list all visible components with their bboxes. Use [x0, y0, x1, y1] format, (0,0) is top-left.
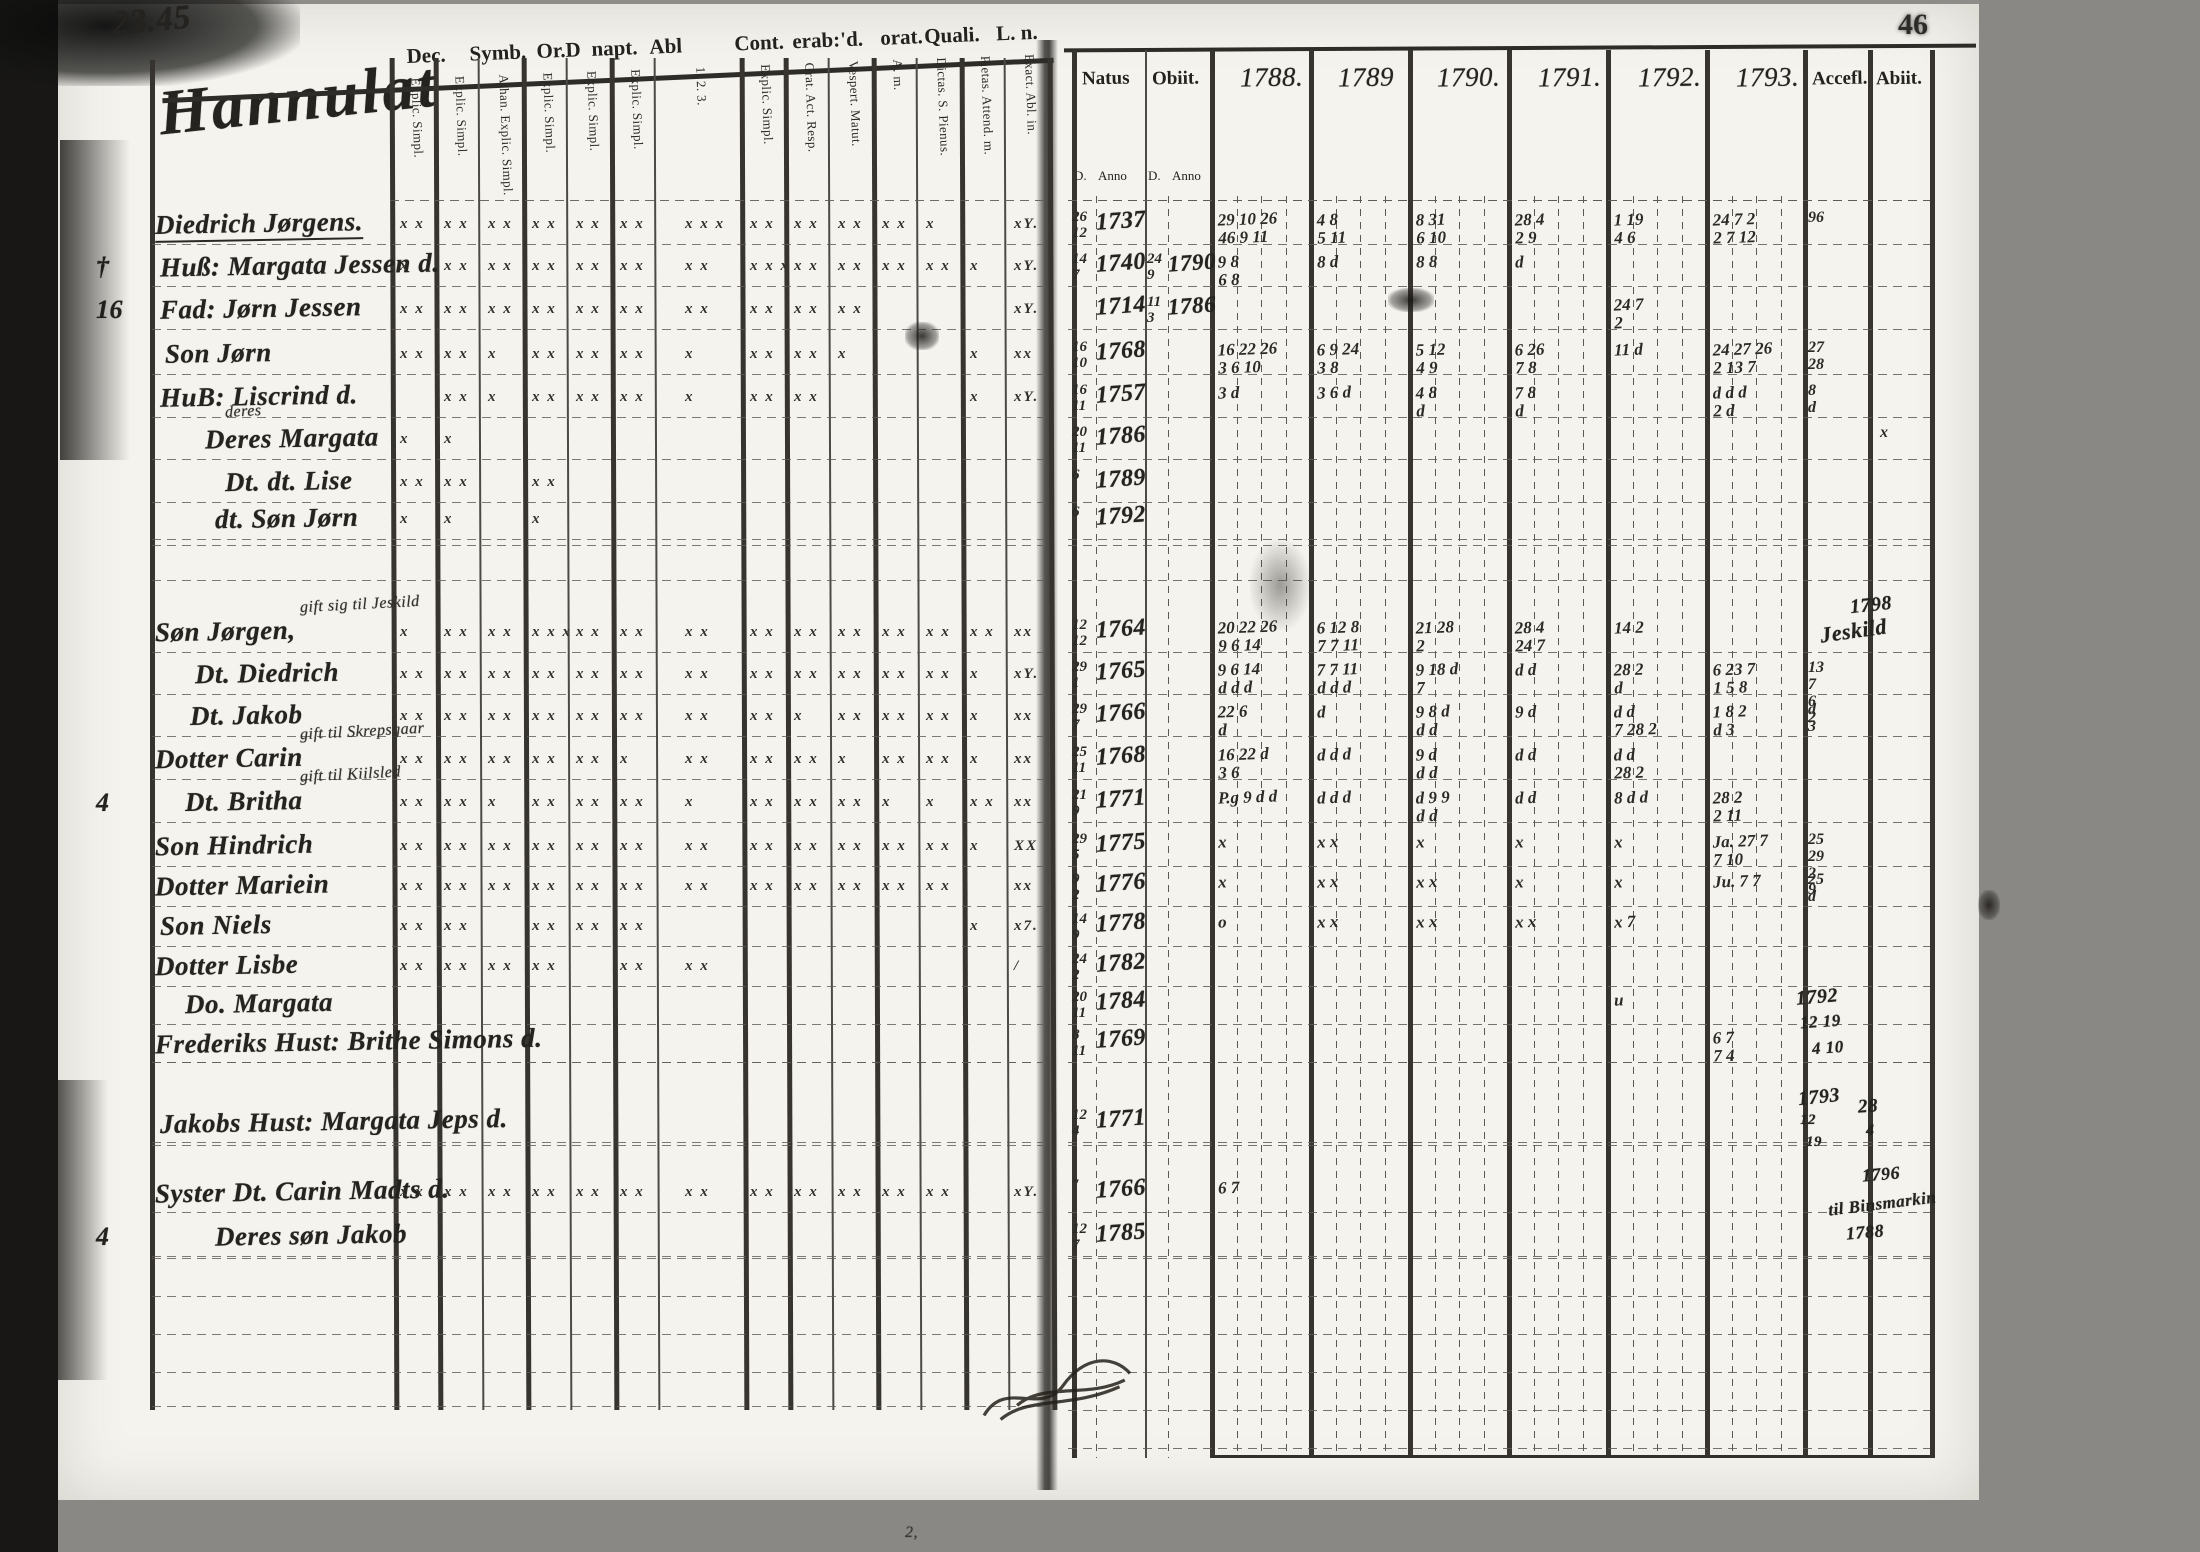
obiit-year: 1786	[1167, 291, 1217, 320]
margin-annotation: 12	[1800, 1112, 1816, 1129]
year-cell: 28 4 2 9	[1514, 208, 1605, 247]
left-row-rule	[152, 1406, 1050, 1407]
year-cell: 6 23 7 1 5 8	[1712, 658, 1803, 697]
natus-day: 12 12	[1072, 618, 1087, 650]
natus-day: 8 11	[1072, 1028, 1086, 1060]
year-cell: 3 d	[1218, 381, 1309, 402]
year-cell: x	[1218, 870, 1309, 891]
ink-blob	[1388, 288, 1434, 312]
right-row-rule	[1068, 286, 1930, 287]
year-cell: P.g 9 d d	[1218, 786, 1309, 807]
ink-blob	[1978, 890, 2000, 920]
left-subcol-label: A. m.	[889, 59, 906, 91]
right-row-rule	[1068, 539, 1930, 540]
right-row-rule	[1068, 1372, 1930, 1373]
left-subcol-label: Explic. Simpl.	[407, 77, 426, 158]
year-cell: 21 28 2	[1415, 616, 1506, 655]
accessit-cell: d 3	[1808, 702, 1816, 736]
right-row: 21 91771P.g 9 d dd d dd 9 9 d dd d8 d d2…	[0, 788, 940, 830]
right-row: 16 1117573 d3 6 d4 8 d7 8 dd d d 2 d8 d	[0, 383, 940, 425]
year-cell: 5 12 4 9	[1415, 338, 1506, 377]
mark-cell: x	[970, 838, 980, 855]
left-subcol-label: Explic. Simpl.	[539, 72, 558, 153]
right-row: 61792	[0, 505, 940, 547]
natus-year: 1784	[1095, 986, 1147, 1016]
year-cell: x x	[1317, 910, 1408, 931]
natus-year: 1778	[1095, 908, 1147, 938]
right-row: 20 111784u	[0, 990, 940, 1032]
year-cell: 7 7 11 d d d	[1316, 658, 1407, 697]
left-group-label: 'd.	[840, 27, 864, 53]
right-row: 12 41771	[0, 1108, 940, 1150]
right-row: 29 117659 6 14 d d d7 7 11 d d d9 18 d 7…	[0, 660, 940, 702]
natus-day: 16 11	[1072, 383, 1087, 415]
year-cell: d d	[1515, 743, 1606, 764]
year-cell: 8 31 6 10	[1415, 208, 1506, 247]
left-group-label: orat.	[880, 24, 924, 51]
right-header-1791: 1791.	[1538, 61, 1602, 93]
natus-day: 24 2	[1072, 952, 1087, 984]
right-header-rule	[1068, 200, 1930, 201]
year-cell: x x	[1317, 870, 1408, 891]
right-row-rule	[1068, 580, 1930, 581]
year-cell: 8 d	[1317, 250, 1408, 271]
right-row-rule	[1068, 1256, 1930, 1257]
natus-day: 20 11	[1072, 425, 1087, 457]
right-row: 9 21776xx xx xxxJu. 7 725 d	[0, 872, 940, 914]
natus-day: 9 2	[1072, 872, 1080, 904]
right-grid-vline	[1309, 50, 1314, 1458]
right-header-1792: 1792.	[1638, 61, 1702, 93]
left-row-rule	[152, 580, 1050, 581]
year-cell: 16 22 26 3 6 10	[1217, 338, 1308, 377]
right-row-rule	[1068, 1296, 1930, 1297]
left-row-rule	[152, 1334, 1050, 1335]
natus-year: 1769	[1095, 1024, 1147, 1054]
natus-day: 20 11	[1072, 990, 1087, 1022]
right-header-1788: 1788.	[1240, 61, 1304, 93]
right-subline	[1657, 196, 1658, 1458]
right-bottom-rule	[1210, 1455, 1930, 1458]
natus-day: 16 10	[1072, 340, 1087, 372]
mark-cell: xY.	[1014, 258, 1039, 275]
natus-year: 1768	[1095, 336, 1147, 366]
mark-cell: x	[970, 918, 980, 935]
year-cell: 9 8 6 8	[1217, 250, 1308, 289]
mark-cell: /	[1014, 958, 1020, 975]
mark-cell: x	[970, 666, 980, 683]
right-grid-vline	[1868, 50, 1873, 1458]
left-header-rule	[390, 200, 1050, 201]
year-cell: d d 7 28 2	[1613, 700, 1704, 739]
natus-year: 1766	[1095, 698, 1147, 728]
year-cell: 24 7 2	[1613, 293, 1704, 332]
natus-year: 1764	[1095, 614, 1147, 644]
natus-day: 12 7	[1072, 1222, 1087, 1254]
accessit-cell: 96	[1808, 210, 1824, 227]
mark-cell: xx	[1014, 878, 1033, 895]
year-cell: 24 27 26 2 13 7	[1712, 338, 1803, 377]
right-header-abiit: Abiit.	[1876, 68, 1922, 91]
right-header-obiit: Obiit.	[1152, 68, 1199, 91]
year-cell: 6 7 7 4	[1712, 1026, 1803, 1065]
right-header-1790: 1790.	[1437, 61, 1501, 93]
left-subcol-label: Grat. Act. Resp.	[801, 62, 820, 152]
year-cell: d d d 2 d	[1712, 381, 1803, 420]
right-grid-vline	[1507, 50, 1512, 1458]
scanned-register-page: 23.45 46 Hannulat Dec.Symb.Or.Dnapt.AblC…	[0, 0, 2200, 1552]
right-header-accefl: Accefl.	[1812, 68, 1868, 91]
year-cell: Ja. 27 7 7 10	[1712, 830, 1803, 869]
right-row: 8 1117696 7 7 4	[0, 1028, 940, 1070]
left-group-label: Or.D	[536, 37, 581, 64]
right-subheader: Anno	[1172, 168, 1201, 184]
natus-year: 1740	[1095, 248, 1147, 278]
mark-cell: XX	[1014, 838, 1038, 855]
right-row-rule	[1068, 459, 1930, 460]
left-subcol-label: 1. 2. 3.	[692, 66, 709, 106]
scan-right-border	[1979, 0, 2200, 1552]
year-cell: x x	[1317, 830, 1408, 851]
natus-day: ″	[1072, 1178, 1080, 1194]
year-cell: 28 2 d	[1613, 658, 1704, 697]
year-cell: d d d	[1317, 743, 1408, 764]
margin-annotation: 1796	[1861, 1162, 1901, 1186]
left-subcol-label: Explic. Simpl.	[583, 71, 602, 152]
year-cell: 9 d	[1515, 700, 1606, 721]
mark-cell: xx	[1014, 794, 1033, 811]
right-row-rule	[1068, 1258, 1930, 1259]
right-row: 61789	[0, 468, 940, 510]
year-cell: 11 d	[1614, 338, 1705, 359]
obiit-day: 24 9	[1147, 252, 1162, 284]
mark-cell: x	[970, 346, 980, 363]
year-cell: 9 18 d 7	[1415, 658, 1506, 697]
left-group-label: Quali.	[924, 22, 980, 49]
left-subcol-label: Pietas. Attend. m.	[977, 56, 997, 156]
year-cell: d	[1515, 250, 1606, 271]
stain	[58, 1080, 108, 1380]
natus-day: 21 9	[1072, 788, 1087, 820]
year-cell: x x	[1416, 910, 1507, 931]
natus-year: 1776	[1095, 868, 1147, 898]
left-subcol-label: Athan. Explic. Simpl.	[495, 74, 516, 196]
mark-cell: xY.	[1014, 1184, 1039, 1201]
abiit-cell: x	[1880, 425, 1888, 442]
margin-annotation: 4	[1866, 1122, 1875, 1140]
natus-day: 26 12	[1072, 210, 1087, 242]
right-row-rule	[1068, 1334, 1930, 1335]
right-row: 14 91778ox xx xx xx 7	[0, 912, 940, 954]
mark-cell: x7.	[1014, 918, 1039, 935]
natus-year: 1765	[1095, 656, 1147, 686]
mark-cell: x	[970, 389, 980, 406]
year-cell: x x	[1416, 870, 1507, 891]
right-subline	[1682, 196, 1683, 1458]
natus-year: 1786	[1095, 421, 1147, 451]
mark-cell: xx	[1014, 708, 1033, 725]
right-row: 26 12173729 10 26 46 9 114 8 5 118 31 6 …	[0, 210, 940, 252]
right-row: ″17666 7	[0, 1178, 940, 1220]
right-row: 20 111786x	[0, 425, 940, 467]
accessit-cell: 27 28	[1808, 340, 1824, 374]
right-subheader: D.	[1148, 168, 1161, 184]
right-grid-vline	[1930, 50, 1935, 1458]
right-row-rule	[1068, 502, 1930, 503]
left-row-rule	[152, 1372, 1050, 1373]
right-row-rule	[1068, 545, 1930, 546]
margin-annotation: 1792	[1795, 984, 1839, 1011]
right-row: 171411 3178624 7 2	[0, 295, 940, 337]
right-row: 29 7176622 6 dd9 8 d d d9 dd d 7 28 21 8…	[0, 702, 940, 744]
right-row: 29 51775xx xxxxJa. 27 7 7 1025 29 2 9	[0, 832, 940, 874]
year-cell: 4 8 5 11	[1316, 208, 1407, 247]
year-cell: d d 28 2	[1613, 743, 1704, 782]
year-cell: x	[1416, 830, 1507, 851]
margin-annotation: 12 19	[1799, 1011, 1841, 1034]
mark-cell: x	[970, 751, 980, 768]
year-cell: 22 6 d	[1217, 700, 1308, 739]
right-row-rule	[1068, 1448, 1930, 1449]
right-row-rule	[1068, 1145, 1930, 1146]
scan-bottom-border	[58, 1500, 1979, 1552]
year-cell: 28 4 24 7	[1514, 616, 1605, 655]
right-row: 12 12176420 22 26 9 6 146 12 8 7 7 1121 …	[0, 618, 940, 660]
natus-day: 25 11	[1072, 745, 1087, 777]
right-subline	[1168, 196, 1169, 1458]
year-cell: d d	[1515, 786, 1606, 807]
year-cell: 7 8 d	[1514, 381, 1605, 420]
margin-annotation: 1788	[1845, 1220, 1885, 1244]
year-cell: 28 2 2 11	[1712, 786, 1803, 825]
year-cell: 9 8 d d d	[1415, 700, 1506, 739]
mark-cell: x x	[970, 624, 995, 641]
year-cell: d d	[1515, 658, 1606, 679]
year-cell: 6 7	[1218, 1176, 1309, 1197]
right-page-number: 46	[1898, 8, 1928, 42]
right-grid-vline	[1705, 50, 1710, 1458]
mark-cell: xx	[1014, 624, 1033, 641]
natus-year: 1782	[1095, 948, 1147, 978]
mark-cell: x x	[970, 794, 995, 811]
obiit-day: 11 3	[1147, 295, 1161, 327]
natus-year: 1771	[1095, 784, 1147, 814]
right-row: 12 71785	[0, 1222, 940, 1264]
natus-year: 1714	[1095, 291, 1147, 321]
ink-blob	[905, 322, 939, 350]
year-cell: u	[1614, 988, 1705, 1009]
margin-annotation: 4 10	[1811, 1037, 1844, 1059]
year-cell: 24 7 2 2 7 12	[1712, 208, 1803, 247]
year-cell: 3 6 d	[1317, 381, 1408, 402]
bottom-mark: 2,	[905, 1524, 918, 1542]
natus-year: 1768	[1095, 741, 1147, 771]
right-row-rule	[1068, 906, 1930, 907]
natus-day: 29 1	[1072, 660, 1087, 692]
year-cell: 1 19 4 6	[1613, 208, 1704, 247]
stain	[1250, 540, 1310, 630]
right-row: 14 7174024 917909 8 6 88 d8 8d	[0, 252, 940, 294]
left-subcol-label: Explic. Simpl.	[757, 64, 776, 145]
right-row: 25 11176816 22 d 3 6d d d9 d d dd dd d 2…	[0, 745, 940, 787]
year-cell: 6 9 24 3 8	[1316, 338, 1407, 377]
mark-cell: xY.	[1014, 666, 1039, 683]
right-header-natus: Natus	[1082, 68, 1130, 91]
year-cell: 14 2	[1614, 616, 1705, 637]
left-group-label: Cont.	[734, 30, 785, 57]
right-subheader: Anno	[1098, 168, 1127, 184]
margin-annotation: 1793	[1797, 1084, 1841, 1111]
margin-annotation: 19	[1806, 1134, 1822, 1151]
right-row: 24 21782	[0, 952, 940, 994]
natus-year: 1789	[1095, 464, 1147, 494]
left-subcol-label: Explic. Simpl.	[627, 69, 646, 150]
right-subline	[1633, 196, 1634, 1458]
mark-cell: x	[970, 258, 980, 275]
natus-year: 1771	[1095, 1104, 1147, 1134]
left-subcol-label: Exact. Abl. in.	[1021, 54, 1040, 135]
year-cell: x	[1614, 830, 1705, 851]
year-cell: 9 d d d	[1415, 743, 1506, 782]
mark-cell: xY.	[1014, 389, 1039, 406]
right-row-rule	[1068, 1142, 1930, 1143]
natus-year: 1792	[1095, 501, 1147, 531]
natus-day: 14 7	[1072, 252, 1087, 284]
right-header-1789: 1789	[1338, 62, 1395, 94]
year-cell: d 9 9 d d	[1415, 786, 1506, 825]
left-group-label: Dec.	[406, 43, 446, 69]
year-cell: o	[1218, 910, 1309, 931]
accessit-cell: 25 d	[1808, 872, 1824, 906]
natus-day: 29 7	[1072, 702, 1087, 734]
right-row-rule	[1068, 946, 1930, 947]
year-cell: x	[1218, 830, 1309, 851]
natus-day: 6	[1072, 505, 1080, 521]
year-cell: x	[1614, 870, 1705, 891]
year-cell: 8 d d	[1614, 786, 1705, 807]
natus-year: 1737	[1095, 206, 1147, 236]
left-page-number: 23.45	[110, 0, 192, 43]
left-row-rule	[152, 1296, 1050, 1297]
year-cell: 8 8	[1416, 250, 1507, 271]
natus-day: 29 5	[1072, 832, 1087, 864]
year-cell: x x	[1515, 910, 1606, 931]
right-row: 16 10176816 22 26 3 6 106 9 24 3 85 12 4…	[0, 340, 940, 382]
right-grid-vline	[1408, 50, 1413, 1458]
natus-day: 6	[1072, 468, 1080, 484]
stain	[60, 140, 130, 460]
mark-cell: xY.	[1014, 216, 1039, 233]
right-header-1793: 1793.	[1736, 61, 1800, 93]
year-cell: 16 22 d 3 6	[1217, 743, 1308, 782]
year-cell: 9 6 14 d d d	[1217, 658, 1308, 697]
left-subcol-label: Explic. Simpl.	[451, 76, 470, 157]
year-cell: d d d	[1317, 786, 1408, 807]
mark-cell: x	[970, 708, 980, 725]
year-cell: 4 8 d	[1415, 381, 1506, 420]
right-row-rule	[1068, 329, 1930, 330]
mark-cell: xY.	[1014, 301, 1039, 318]
natus-year: 1775	[1095, 828, 1147, 858]
right-row-rule	[1068, 1410, 1930, 1411]
obiit-year: 1790	[1167, 248, 1217, 277]
natus-day: 14 9	[1072, 912, 1087, 944]
left-group-label: L. n.	[996, 20, 1038, 47]
margin-annotation: 28	[1857, 1095, 1878, 1118]
right-grid-vline	[1606, 50, 1611, 1458]
year-cell: 1 8 2 d 3	[1712, 700, 1803, 739]
year-cell: x 7	[1614, 910, 1705, 931]
left-subcol-label: Dictas. S. Pienus.	[933, 57, 953, 156]
year-cell: d	[1317, 700, 1408, 721]
natus-year: 1785	[1095, 1218, 1147, 1248]
left-subcol-label: Vespert. Matut.	[845, 61, 864, 147]
year-cell: x	[1515, 870, 1606, 891]
natus-year: 1766	[1095, 1174, 1147, 1204]
year-cell: 29 10 26 46 9 11	[1217, 208, 1308, 247]
mark-cell: xx	[1014, 346, 1033, 363]
natus-year: 1757	[1095, 379, 1147, 409]
left-group-label: erab:	[792, 27, 841, 54]
right-grid-vline	[1803, 50, 1808, 1458]
year-cell: 6 12 8 7 7 11	[1316, 616, 1407, 655]
accessit-cell: 8 d	[1808, 383, 1816, 417]
year-cell: Ju. 7 7	[1713, 870, 1804, 891]
year-cell: x	[1515, 830, 1606, 851]
mark-cell: xx	[1014, 751, 1033, 768]
year-cell: 6 26 7 8	[1514, 338, 1605, 377]
right-row-rule	[1068, 1212, 1930, 1213]
left-group-label: Abl	[649, 33, 683, 59]
natus-day: 12 4	[1072, 1108, 1087, 1140]
